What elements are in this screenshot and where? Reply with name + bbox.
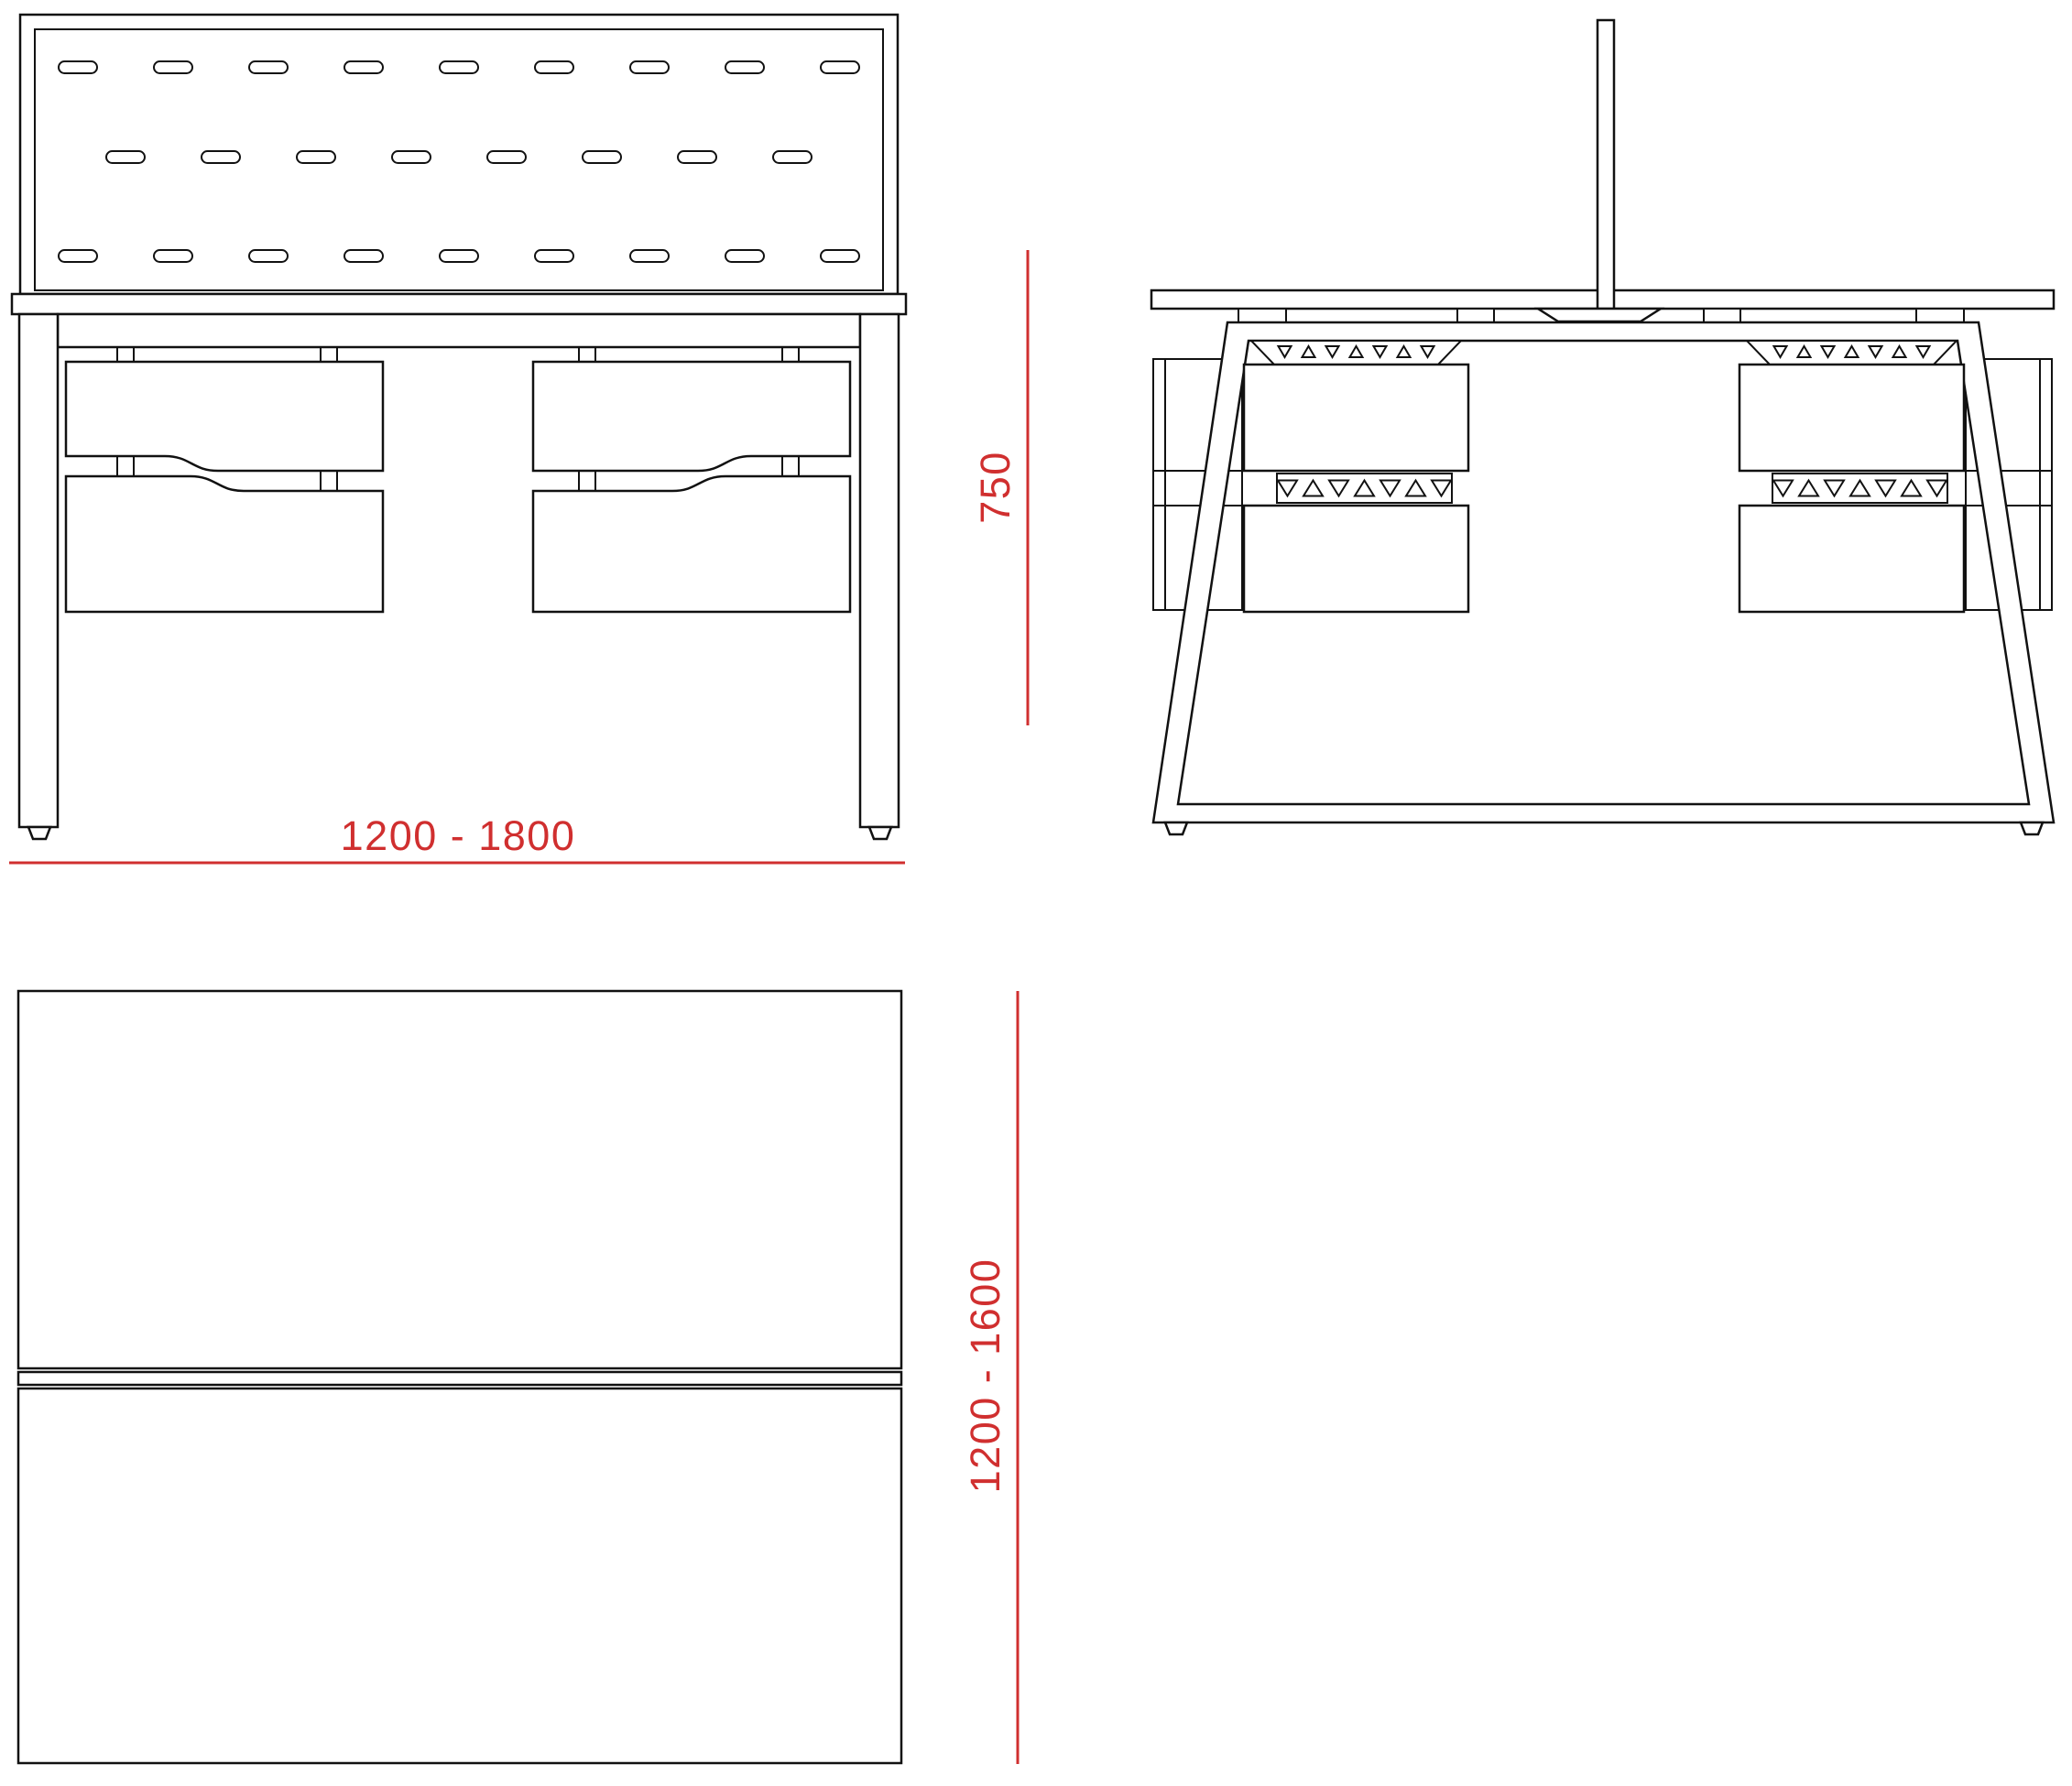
screen-slot	[630, 250, 669, 262]
underdesk-rail	[58, 314, 860, 347]
desktop-plan-top	[18, 991, 901, 1368]
drawer-top	[66, 362, 383, 471]
screen-slot	[487, 151, 526, 163]
height-dimension-label: 750	[972, 451, 1019, 524]
foot-left	[1165, 822, 1187, 834]
screen-slot	[773, 151, 812, 163]
screen-slot	[344, 61, 383, 73]
leg-left	[19, 314, 58, 827]
divider-screen-plan	[18, 1372, 901, 1385]
screen-slot	[106, 151, 145, 163]
drawer-top	[533, 362, 850, 471]
screen-slot	[249, 250, 288, 262]
hanger-brackets-top	[117, 347, 799, 363]
drawer-bottom	[533, 476, 850, 612]
screen-slot	[583, 151, 621, 163]
screen-slot	[821, 61, 859, 73]
desk-technical-drawing: 1200 - 1800 750 1200 - 1600	[0, 0, 2072, 1786]
drawer-side-top	[1739, 365, 1964, 471]
screen-slot	[440, 61, 478, 73]
depth-dimension-label: 1200 - 1600	[962, 1258, 1009, 1494]
screen-slot	[535, 250, 573, 262]
plan-view	[18, 991, 901, 1763]
connector-block	[1704, 309, 1740, 322]
screen-slot	[392, 151, 431, 163]
connector-block	[1238, 309, 1286, 322]
pedestal-front-left	[66, 362, 383, 612]
pedestal-side-right	[1739, 341, 1964, 612]
desktop-plan-bottom	[18, 1389, 901, 1763]
connector-block	[1457, 309, 1494, 322]
drawer-side-bottom	[1244, 506, 1468, 612]
pedestal-front-right	[533, 362, 850, 612]
width-dimension-label: 1200 - 1800	[341, 812, 576, 859]
screen-slot	[202, 151, 240, 163]
screen-slot	[725, 61, 764, 73]
foot-left	[28, 827, 50, 839]
drawer-bottom	[66, 476, 383, 612]
foot-right	[869, 827, 891, 839]
drawer-side-bottom	[1739, 506, 1964, 612]
screen-slot	[630, 61, 669, 73]
screen-clamp	[1538, 309, 1661, 321]
desktop-front	[12, 294, 906, 314]
connector-block	[1916, 309, 1964, 322]
screen-slot	[59, 250, 97, 262]
pedestal-side-left	[1244, 341, 1468, 612]
screen-slot	[821, 250, 859, 262]
screen-slot	[59, 61, 97, 73]
screen-slot	[344, 250, 383, 262]
foot-right	[2021, 822, 2043, 834]
screen-slot	[154, 250, 192, 262]
side-view	[1151, 20, 2054, 834]
screen-slot	[154, 61, 192, 73]
screen-slot	[678, 151, 716, 163]
front-view	[12, 15, 906, 839]
divider-screen-edge	[1598, 20, 1614, 309]
screen-slot	[535, 61, 573, 73]
screen-slot	[297, 151, 335, 163]
technical-drawing-page: 1200 - 1800 750 1200 - 1600	[0, 0, 2072, 1786]
screen-slot	[249, 61, 288, 73]
screen-slot	[725, 250, 764, 262]
screen-slot	[440, 250, 478, 262]
drawer-side-top	[1244, 365, 1468, 471]
leg-right	[860, 314, 899, 827]
